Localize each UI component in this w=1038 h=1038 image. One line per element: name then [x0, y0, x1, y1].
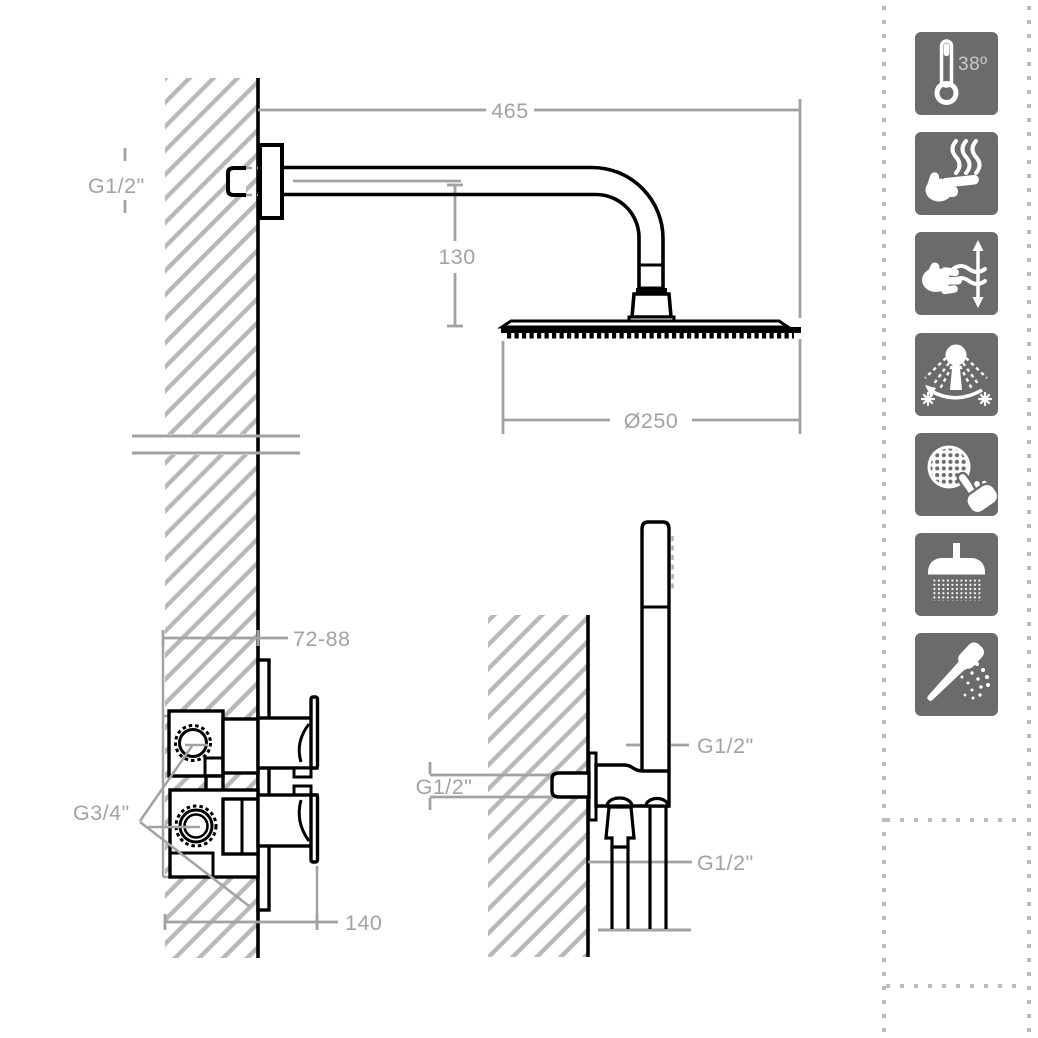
head-plate-base: [501, 327, 801, 333]
touch-clean-spray-plate-icon: [915, 433, 998, 516]
dim-valve-depth-label: 140: [345, 911, 382, 935]
head-nut: [632, 294, 671, 317]
dim-outlet-thread-label: G1/2": [416, 775, 473, 799]
swivel-shower-icon: [915, 333, 998, 416]
head-nozzles: [507, 333, 794, 339]
flow-volume-control-icon: [915, 232, 998, 315]
spray-plate-touch-icon: [915, 433, 998, 516]
hot-cold-swivel-spray-icon: [915, 333, 998, 416]
arm-wall-flange: [260, 145, 282, 218]
dotted-divider-lower: [886, 984, 1024, 988]
dim-drop-height-label: 130: [438, 245, 475, 269]
dotted-border-left: [882, 6, 886, 1034]
dim-head-diameter-label: Ø250: [624, 409, 679, 433]
temperature-setting-label: 38º: [958, 54, 988, 76]
head-plate-top: [502, 321, 788, 327]
arm-thread-nipple: [228, 168, 246, 195]
dim-hose-thread-label: G1/2": [697, 851, 754, 875]
handheld-shower-spray-icon: [915, 633, 998, 716]
dotted-border-right: [1027, 6, 1031, 1034]
dim-arm-thread-label: G1/2": [88, 174, 145, 198]
hose-cone-nut: [606, 807, 634, 847]
dim-valve-thread-label: G3/4": [73, 801, 130, 825]
dim-recess-depth-label: 72-88: [293, 627, 351, 651]
steam-hand-icon: [915, 132, 998, 215]
dim-handle-thread-label: G1/2": [697, 734, 754, 758]
outlet-thread-nipple: [552, 773, 589, 797]
hand-shower-handle: [642, 522, 669, 770]
dotted-divider-upper: [886, 818, 1024, 822]
hand-shower-icon: [915, 633, 998, 716]
overhead-rain-spray-icon: [915, 533, 998, 616]
thermostatic-38-degrees-icon: 38º: [915, 32, 998, 115]
flow-adjust-hand-icon: [915, 232, 998, 315]
anti-scald-safe-touch-icon: [915, 132, 998, 215]
rain-shower-icon: [915, 533, 998, 616]
overhead-shower-head: [501, 288, 801, 339]
spec-sheet-page: 465 130 G1/2" Ø250 72-88 G3/4" 140 G1/2"…: [0, 0, 1038, 1038]
installation-drawing: 465 130 G1/2" Ø250 72-88 G3/4" 140 G1/2"…: [0, 0, 880, 1038]
dim-arm-length-label: 465: [491, 99, 528, 123]
